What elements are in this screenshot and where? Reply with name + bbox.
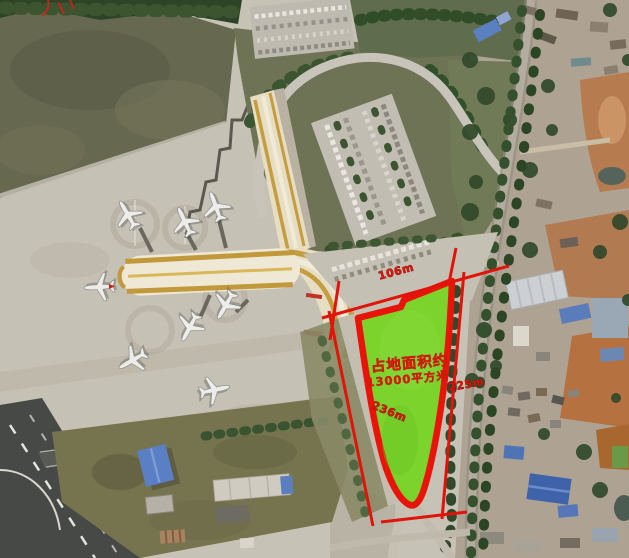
- dark-building: [215, 505, 249, 524]
- satellite-screenshot: 106m 225m 236m 占地面积约 13000平方米: [0, 0, 629, 558]
- pond: [598, 167, 626, 185]
- parking-lot-top: [250, 0, 355, 59]
- striped-building: [160, 529, 186, 544]
- gray-building: [145, 495, 174, 515]
- green-court: [612, 446, 628, 468]
- satellite-scene: 106m 225m 236m 占地面积约 13000平方米: [0, 0, 629, 558]
- small-hut: [240, 538, 255, 549]
